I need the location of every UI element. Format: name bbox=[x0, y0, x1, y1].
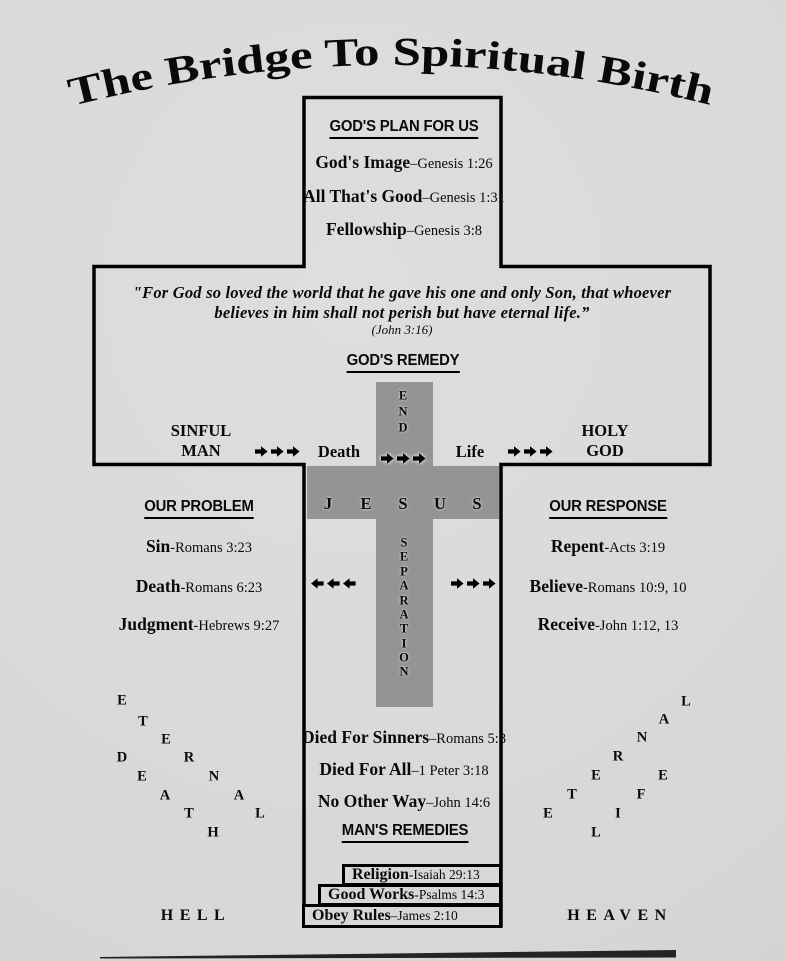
remedy-box-obey-rules: Obey Rules–James 2:10 bbox=[302, 904, 502, 928]
verse-quote-line2: believes in him shall not perish but hav… bbox=[214, 303, 589, 323]
scatter-letter: E bbox=[137, 769, 147, 786]
problem-item-sin: Sin-Romans 3:23 bbox=[146, 536, 252, 557]
scatter-letter: E bbox=[591, 768, 601, 785]
response-item-label: Believe bbox=[530, 576, 583, 596]
provision-item-died-for-sinners: Died For Sinners–Romans 5:8 bbox=[302, 727, 506, 748]
response-item-believe: Believe-Romans 10:9, 10 bbox=[530, 576, 687, 597]
provision-item-label: No Other Way bbox=[318, 791, 426, 811]
problem-item-ref: -Hebrews 9:27 bbox=[194, 618, 280, 634]
problem-item-label: Death bbox=[136, 576, 181, 596]
scatter-letter: F bbox=[637, 787, 646, 804]
arrows-right-icon bbox=[381, 453, 426, 464]
heaven-label: HEAVEN bbox=[567, 907, 672, 925]
remedy-box-label: Religion bbox=[352, 866, 409, 884]
poster-title-text: The Bridge To Spiritual Birth bbox=[64, 29, 719, 115]
remedy-box-label: Good Works bbox=[328, 886, 414, 904]
problem-item-ref: -Romans 3:23 bbox=[170, 540, 252, 556]
man-label-line: MAN bbox=[171, 441, 232, 461]
provision-item-label: Died For All bbox=[319, 759, 411, 779]
scatter-letter: A bbox=[659, 712, 669, 729]
arrows-right-icon bbox=[255, 446, 300, 457]
svg-text:The Bridge To Spiritual Birth: The Bridge To Spiritual Birth bbox=[64, 29, 719, 115]
problem-item-judgment: Judgment-Hebrews 9:27 bbox=[119, 614, 280, 635]
remedy-box-ref: -Psalms 14:3 bbox=[414, 887, 484, 903]
scatter-letter: I bbox=[615, 806, 621, 823]
plan-item-all-thats-good: All That's Good–Genesis 1:31 bbox=[303, 186, 505, 207]
scatter-letter: L bbox=[681, 694, 691, 711]
response-item-repent: Repent-Acts 3:19 bbox=[551, 536, 665, 557]
scatter-letter: E bbox=[543, 806, 553, 823]
mans-remedies-heading: MAN'S REMEDIES bbox=[342, 822, 469, 843]
provision-item-ref: –Romans 5:8 bbox=[429, 731, 506, 747]
scatter-letter: E bbox=[658, 768, 668, 785]
scatter-letter: T bbox=[567, 787, 577, 804]
god-label-line: GOD bbox=[581, 441, 628, 461]
plan-item-label: Fellowship bbox=[326, 219, 407, 239]
sinful-label-line: SINFUL bbox=[171, 421, 232, 441]
response-item-receive: Receive-John 1:12, 13 bbox=[538, 614, 679, 635]
plan-item-gods-image: God's Image–Genesis 1:26 bbox=[315, 152, 492, 173]
scatter-letter: N bbox=[209, 769, 219, 786]
plan-item-ref: –Genesis 1:26 bbox=[410, 156, 493, 172]
provision-item-label: Died For Sinners bbox=[302, 727, 429, 747]
scatter-letter: N bbox=[637, 730, 647, 747]
gods-plan-heading: GOD'S PLAN FOR US bbox=[329, 118, 478, 139]
provision-item-died-for-all: Died For All–1 Peter 3:18 bbox=[319, 759, 488, 780]
plan-item-ref: –Genesis 1:31 bbox=[422, 190, 505, 206]
our-problem-heading: OUR PROBLEM bbox=[144, 498, 254, 519]
verse-citation: (John 3:16) bbox=[371, 322, 432, 338]
scatter-letter: A bbox=[160, 788, 170, 805]
problem-item-death: Death-Romans 6:23 bbox=[136, 576, 262, 597]
gray-cross-horizontal-bar bbox=[307, 466, 499, 519]
scatter-letter: L bbox=[591, 825, 601, 842]
arrows-right-icon bbox=[508, 446, 553, 457]
problem-item-label: Sin bbox=[146, 536, 170, 556]
problem-item-ref: -Romans 6:23 bbox=[180, 580, 262, 596]
scatter-letter: T bbox=[184, 806, 194, 823]
poster-title: The Bridge To Spiritual Birth bbox=[0, 0, 786, 130]
scatter-letter: E bbox=[117, 693, 127, 710]
response-item-ref: -Romans 10:9, 10 bbox=[583, 580, 687, 596]
scatter-letter: D bbox=[117, 750, 127, 767]
remedy-box-good-works: Good Works-Psalms 14:3 bbox=[318, 884, 502, 906]
remedy-box-ref: -Isaiah 29:13 bbox=[409, 867, 480, 883]
arrows-left-icon bbox=[311, 578, 356, 589]
poster: The Bridge To Spiritual Birth GOD'S PLAN… bbox=[0, 0, 786, 961]
plan-item-label: God's Image bbox=[315, 152, 410, 172]
scatter-letter: H bbox=[207, 825, 218, 842]
problem-item-label: Judgment bbox=[119, 614, 194, 634]
response-item-ref: -John 1:12, 13 bbox=[595, 618, 678, 634]
plan-item-label: All That's Good bbox=[303, 186, 422, 206]
remedy-box-ref: –James 2:10 bbox=[391, 908, 458, 924]
provision-item-ref: –John 14:6 bbox=[426, 795, 490, 811]
gray-cross-vertical-bar bbox=[376, 382, 433, 707]
scatter-letter: R bbox=[184, 750, 194, 767]
sinful-man-label: SINFUL MAN bbox=[171, 421, 232, 460]
arrows-right-icon bbox=[451, 578, 496, 589]
remedy-box-label: Obey Rules bbox=[312, 907, 391, 925]
scatter-letter: R bbox=[613, 749, 623, 766]
gods-remedy-heading: GOD'S REMEDY bbox=[347, 352, 460, 373]
life-label: Life bbox=[456, 442, 484, 462]
hell-label: HELL bbox=[161, 907, 231, 925]
page-bottom-line bbox=[100, 950, 676, 959]
holy-god-label: HOLY GOD bbox=[581, 421, 628, 460]
scatter-letter: L bbox=[255, 806, 265, 823]
provision-item-ref: –1 Peter 3:18 bbox=[411, 763, 488, 779]
death-label: Death bbox=[318, 442, 360, 462]
scatter-letter: E bbox=[161, 732, 171, 749]
holy-label-line: HOLY bbox=[581, 421, 628, 441]
response-item-ref: -Acts 3:19 bbox=[604, 540, 665, 556]
provision-item-no-other-way: No Other Way–John 14:6 bbox=[318, 791, 490, 812]
response-item-label: Receive bbox=[538, 614, 595, 634]
verse-quote-line1: "For God so loved the world that he gave… bbox=[133, 283, 671, 303]
our-response-heading: OUR RESPONSE bbox=[549, 498, 667, 519]
plan-item-ref: –Genesis 3:8 bbox=[407, 223, 482, 239]
scatter-letter: A bbox=[234, 788, 244, 805]
remedy-box-religion: Religion-Isaiah 29:13 bbox=[342, 864, 502, 886]
response-item-label: Repent bbox=[551, 536, 604, 556]
scatter-letter: T bbox=[138, 714, 148, 731]
plan-item-fellowship: Fellowship–Genesis 3:8 bbox=[326, 219, 482, 240]
